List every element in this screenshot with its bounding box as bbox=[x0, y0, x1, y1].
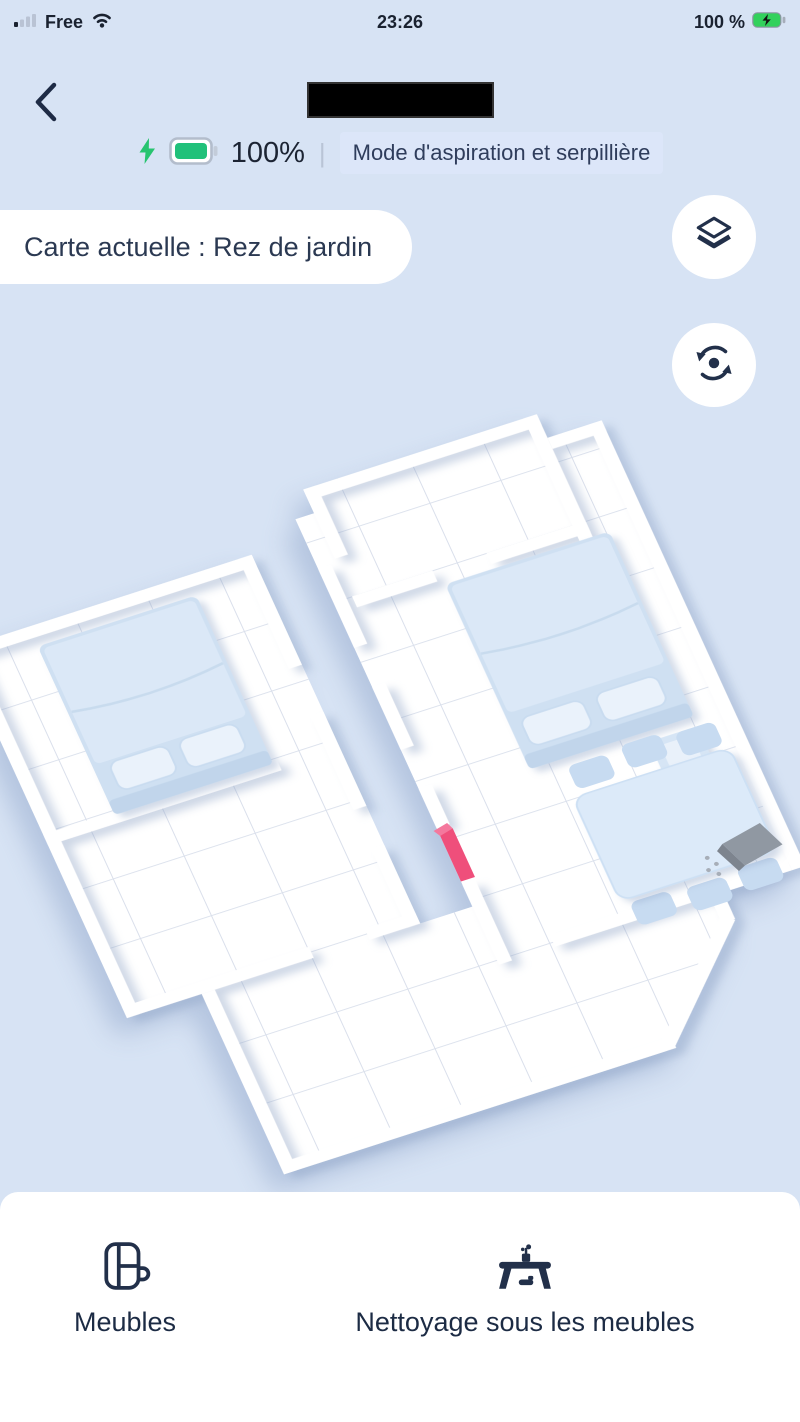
map-rotate-button[interactable] bbox=[672, 323, 756, 407]
device-name-redacted bbox=[307, 82, 494, 118]
robot-battery-level: 100% bbox=[231, 137, 305, 170]
robot-battery-icon bbox=[169, 136, 219, 171]
bottom-action-bar: Meubles Netto bbox=[0, 1192, 800, 1422]
robot-status-row: 100% | Mode d'aspiration et serpillière bbox=[0, 130, 800, 176]
divider: | bbox=[319, 138, 326, 169]
charging-bolt-icon bbox=[137, 137, 157, 170]
furniture-label: Meubles bbox=[74, 1307, 176, 1338]
clean-under-furniture-button[interactable]: Nettoyage sous les meubles bbox=[300, 1240, 750, 1338]
clock: 23:26 bbox=[0, 12, 800, 33]
map-layers-button[interactable] bbox=[672, 195, 756, 279]
current-map-label: Carte actuelle : Rez de jardin bbox=[24, 232, 372, 263]
furniture-button[interactable]: Meubles bbox=[55, 1240, 195, 1338]
layers-icon bbox=[691, 212, 737, 263]
current-map-pill[interactable]: Carte actuelle : Rez de jardin bbox=[0, 210, 412, 284]
clean-under-furniture-label: Nettoyage sous les meubles bbox=[355, 1307, 694, 1338]
floorplan-3d-map[interactable] bbox=[0, 412, 800, 1192]
back-chevron-icon bbox=[30, 111, 64, 128]
clean-under-furniture-icon bbox=[496, 1240, 554, 1297]
cleaning-mode-badge[interactable]: Mode d'aspiration et serpillière bbox=[340, 132, 664, 174]
rotate-icon bbox=[691, 340, 737, 391]
app-screen: Free 23:26 100 % bbox=[0, 0, 800, 1422]
status-bar: Free 23:26 100 % bbox=[0, 0, 800, 44]
back-button[interactable] bbox=[30, 80, 70, 124]
furniture-icon bbox=[99, 1240, 151, 1297]
